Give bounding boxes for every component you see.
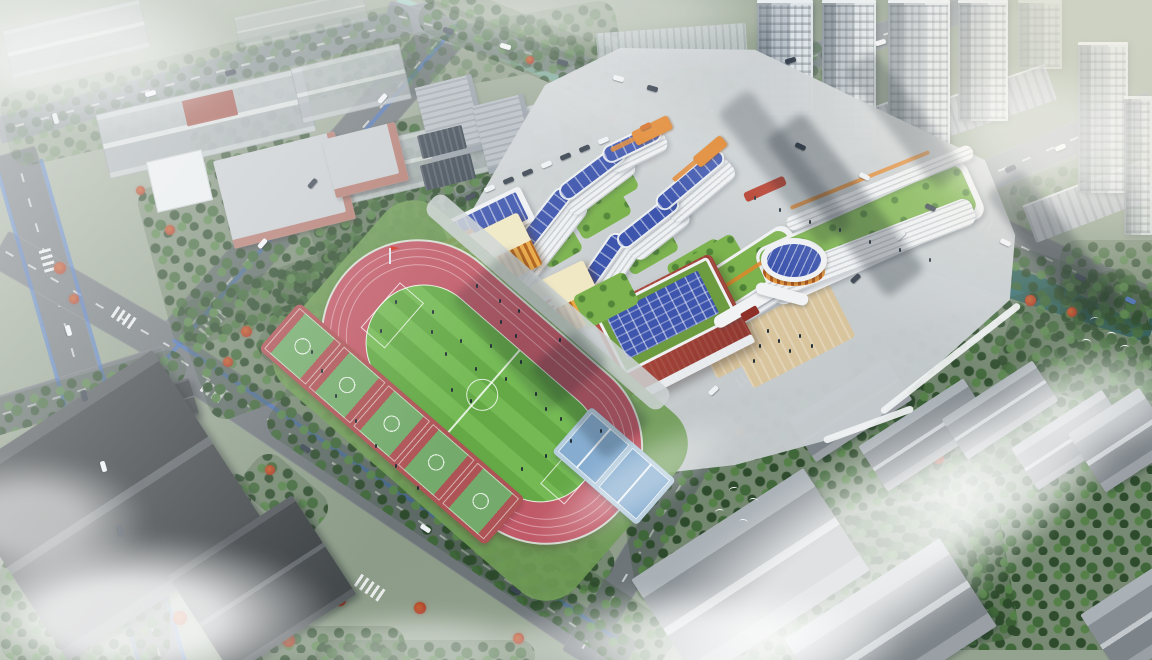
mist-cloud	[490, 585, 910, 660]
mist-cloud	[990, 343, 1152, 453]
mist-cloud	[0, 0, 250, 135]
aerial-campus-rendering	[0, 0, 1152, 660]
mist-cloud	[390, 0, 810, 57]
atmosphere-layer	[0, 0, 1152, 660]
mist-cloud	[910, 60, 1152, 220]
mist-cloud	[0, 455, 150, 585]
